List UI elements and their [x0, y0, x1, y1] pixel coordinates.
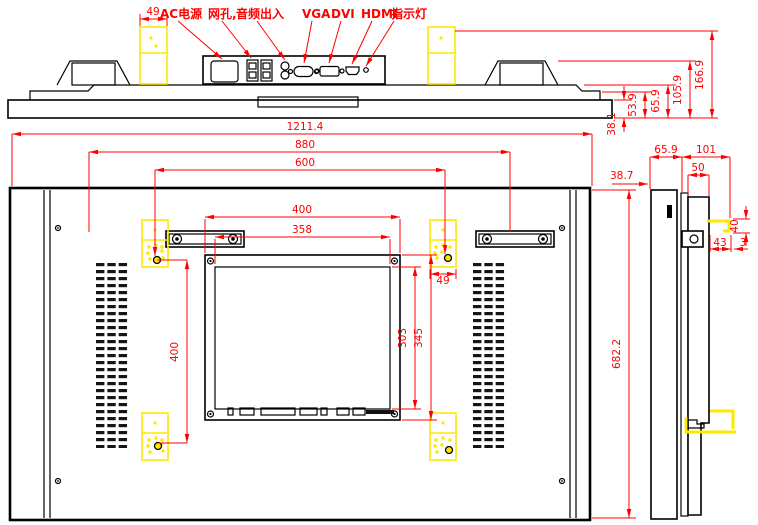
dim-side-front-depth: 65.9: [654, 144, 677, 156]
dim-top-bracket-width: 49: [146, 6, 159, 18]
dim-mount-span-height: 400: [169, 342, 181, 362]
dim-side-rear-depth: 101: [696, 144, 716, 156]
cad-drawing-page: 49 53.9 65.9 105.9 166.9 38.1 AC电源 网孔, 音…: [0, 0, 758, 525]
dim-box-height: 345: [413, 328, 425, 348]
callout-indicator: 指示灯: [391, 6, 427, 21]
dim-top-overall: 166.9: [694, 60, 706, 90]
dim-side-hook-height: 40: [729, 219, 741, 232]
dim-overall-height: 682.2: [611, 339, 623, 369]
electronics-box: [205, 255, 400, 420]
dim-mount-span-width: 600: [295, 157, 315, 169]
side-panel-slab: [651, 190, 677, 519]
dim-top-front: 65.9: [650, 89, 662, 112]
side-handle-bolt: [682, 231, 703, 247]
dim-side-hook-lip: 3: [740, 237, 747, 249]
dim-overall-width: 1211.4: [287, 121, 324, 133]
dim-block-width: 49: [436, 275, 449, 287]
callout-vga: VGA: [302, 7, 331, 21]
dim-box-inner-width: 358: [292, 224, 312, 236]
technical-drawing-canvas: 49 53.9 65.9 105.9 166.9 38.1 AC电源 网孔, 音…: [0, 0, 758, 525]
callout-ac-power: AC电源: [160, 6, 202, 21]
dim-handle-span: 880: [295, 139, 315, 151]
callout-lan: 网孔,: [208, 7, 237, 21]
dim-top-mid: 105.9: [672, 75, 684, 105]
dim-box-inner-height: 303: [397, 328, 409, 348]
rear-handle-right: [476, 231, 554, 247]
dim-side-hook-width: 43: [713, 237, 726, 249]
side-panel-mark: [667, 205, 672, 218]
callout-audio: 音频出入: [236, 6, 284, 21]
dim-top-body: 38.1: [606, 112, 618, 135]
dim-side-box-depth: 50: [691, 162, 704, 174]
dim-side-bezel: 38.7: [610, 170, 633, 182]
vent-grille-right: [473, 263, 507, 448]
dim-top-step: 53.9: [627, 93, 639, 116]
callout-dvi: DVI: [331, 7, 355, 21]
dim-box-width: 400: [292, 204, 312, 216]
vent-grille-left: [96, 263, 130, 448]
